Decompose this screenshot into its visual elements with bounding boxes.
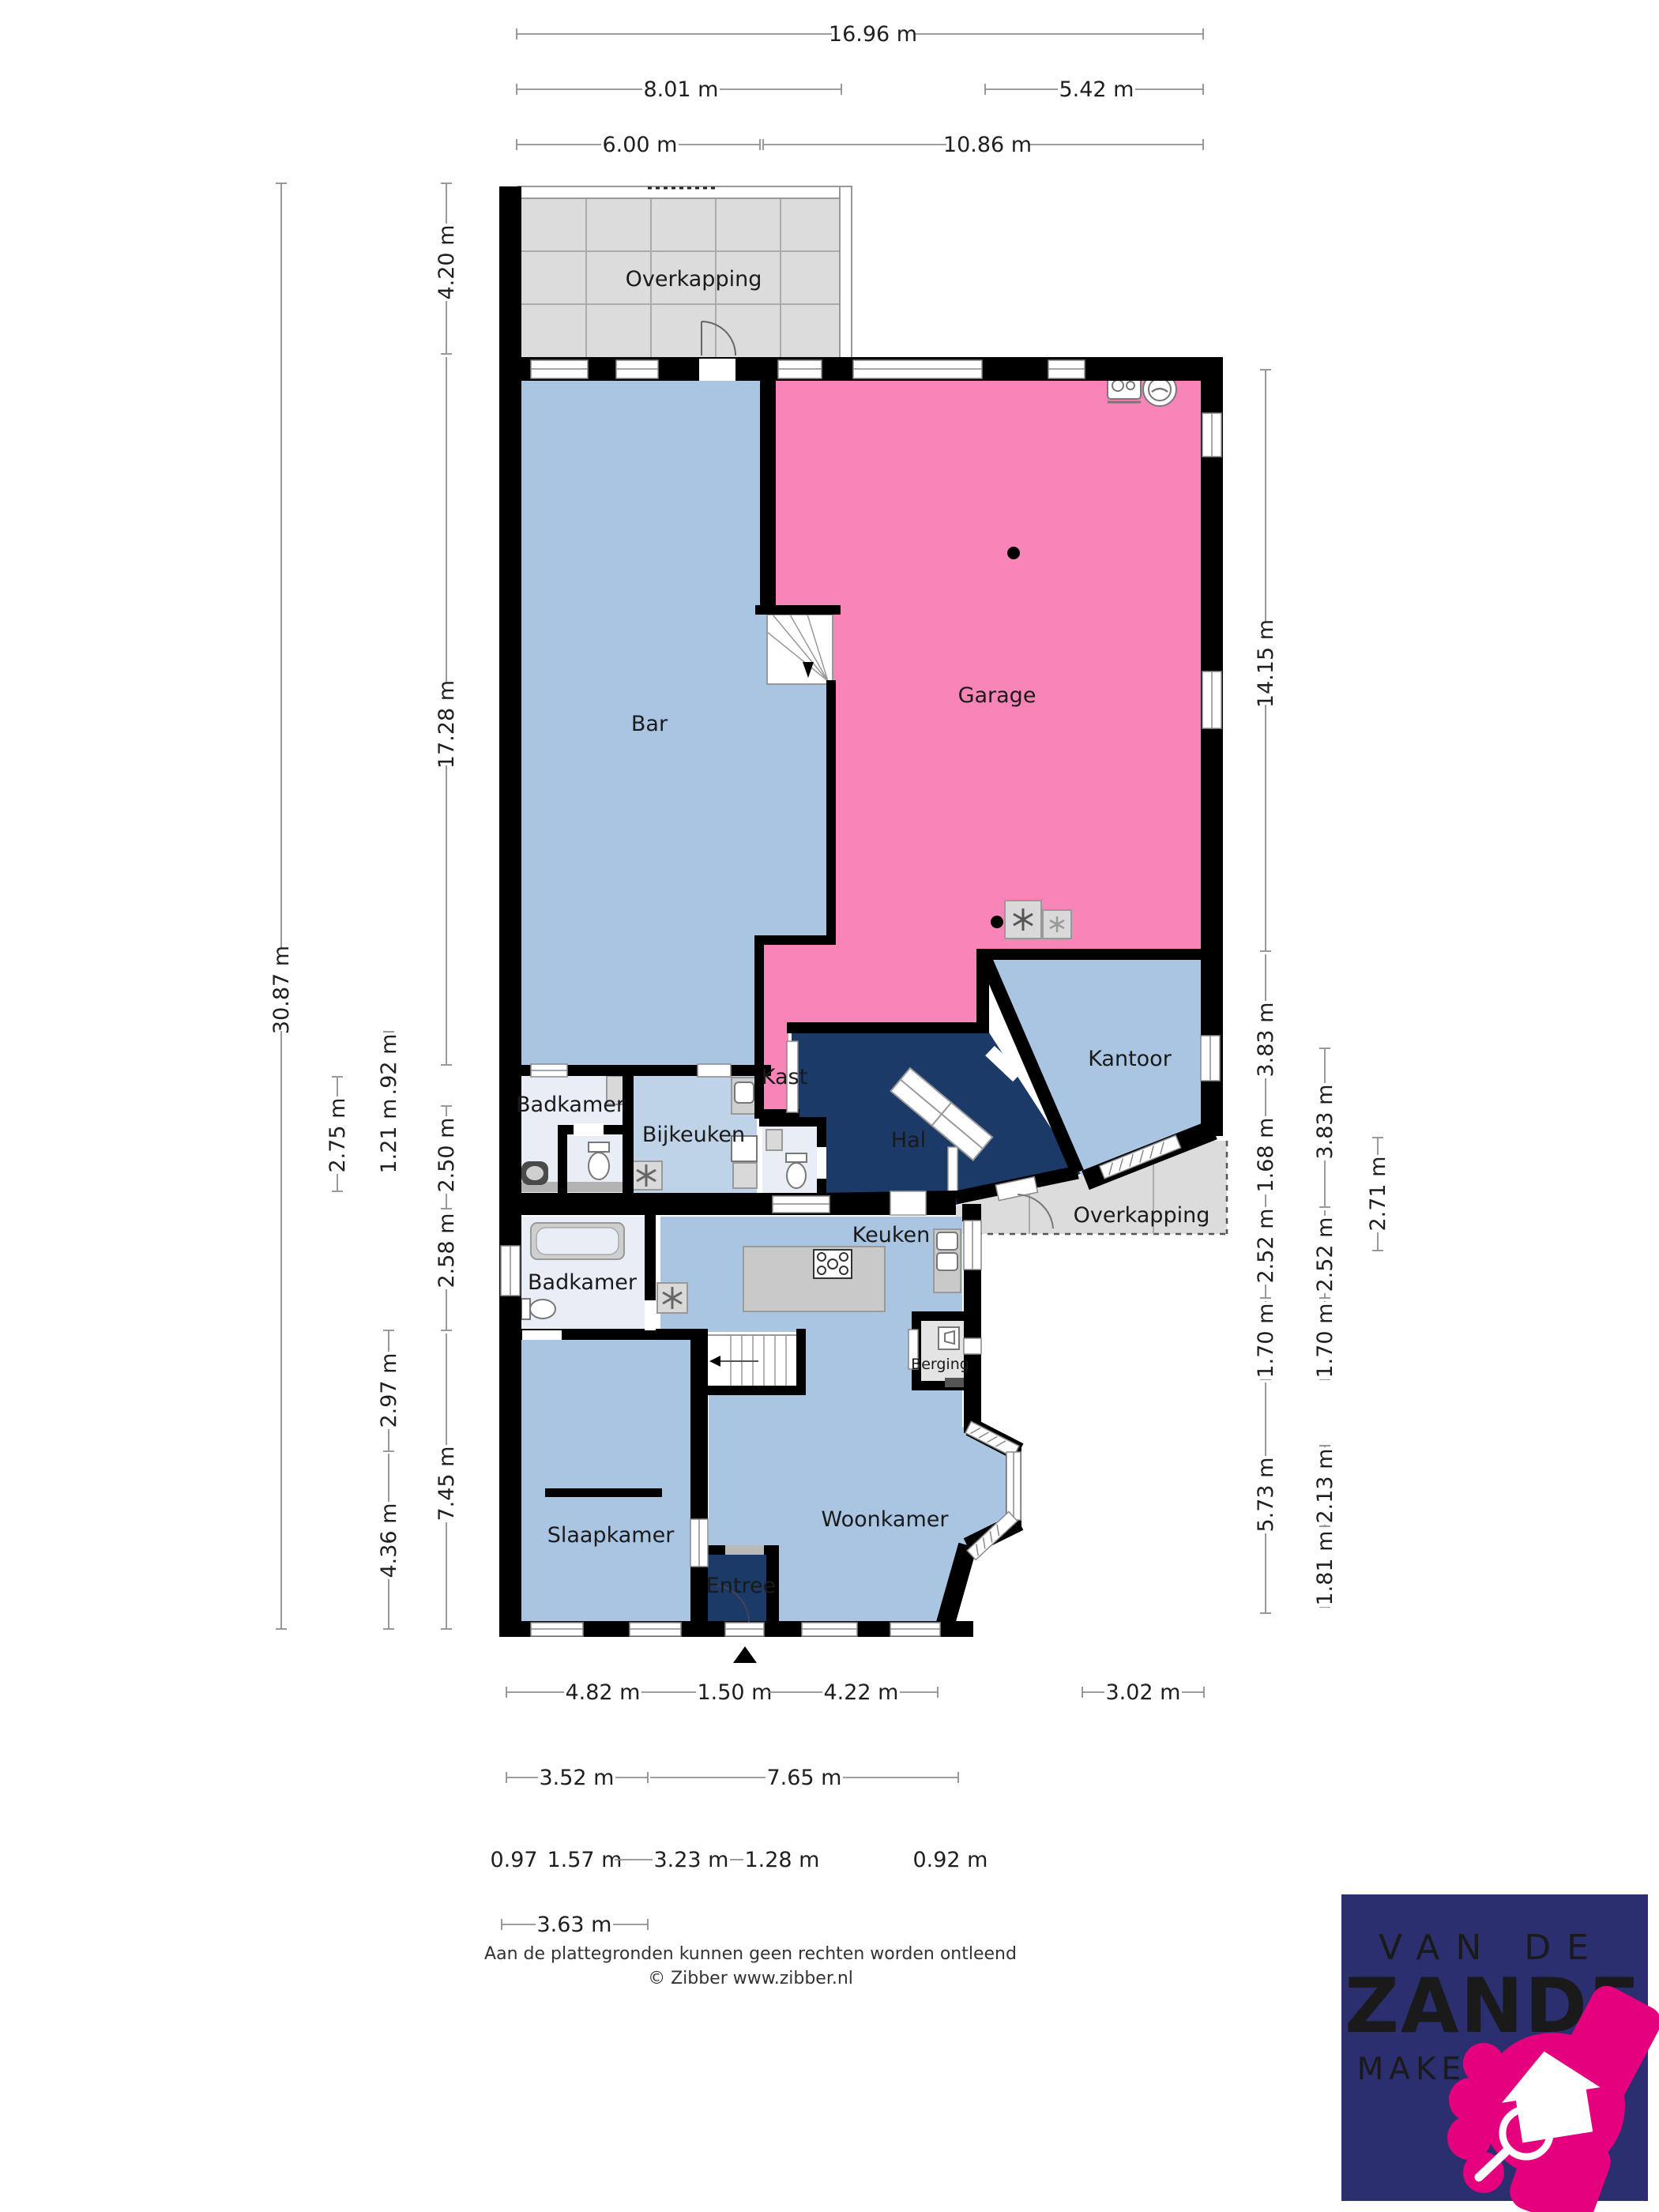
column-dot xyxy=(1007,547,1020,559)
label-garage: Garage xyxy=(958,683,1036,708)
label-keuken: Keuken xyxy=(852,1223,930,1247)
dim-label: 3.23 m xyxy=(653,1848,728,1872)
door-opening xyxy=(773,1196,829,1213)
dim-label: 2.52 m xyxy=(1254,1208,1278,1283)
dim-label: 14.15 m xyxy=(1254,619,1278,708)
stairs-lower xyxy=(707,1335,799,1387)
dim-label: 1.70 m xyxy=(1254,1303,1278,1378)
dim-label: 4.22 m xyxy=(823,1680,898,1705)
dim-label: 1.81 m xyxy=(1313,1530,1337,1605)
dim-label: 4.36 m xyxy=(377,1503,401,1578)
dim-label: 1.70 m xyxy=(1313,1303,1337,1378)
boiler-icon xyxy=(939,1327,959,1349)
dim-label: 4.82 m xyxy=(565,1680,640,1705)
door-opening xyxy=(699,359,735,381)
stove-icon xyxy=(814,1250,852,1278)
dim-label: 3.83 m xyxy=(1313,1084,1337,1159)
window xyxy=(501,1246,520,1296)
dim-label: 3.02 m xyxy=(1105,1680,1180,1705)
dim-label: 1.68 m xyxy=(1254,1117,1278,1192)
label-entree: Entree xyxy=(706,1574,777,1598)
toilet-icon xyxy=(786,1153,807,1188)
label-overkapping-right: Overkapping xyxy=(1074,1203,1210,1228)
slaapkamer-bar xyxy=(545,1488,662,1497)
window xyxy=(853,360,982,378)
berging-threshold xyxy=(945,1378,964,1387)
dim-label: 2.52 m xyxy=(1313,1217,1337,1292)
dim-right: 14.15 m 3.83 m 1.68 m 2.52 m 1.70 m 5.73… xyxy=(1254,370,1390,1613)
dim-label: 2.13 m xyxy=(1313,1448,1337,1523)
dim-label: 2.75 m xyxy=(325,1097,350,1172)
floorplan-drawing: Overkapping Bar Garage Kantoor Badkamer … xyxy=(0,0,1659,2212)
label-berging: Berging xyxy=(911,1356,969,1373)
room-slaapkamer xyxy=(519,1335,693,1623)
label-badkamer-beneden: Badkamer xyxy=(528,1270,638,1295)
dim-label: 1.28 m xyxy=(744,1848,819,1872)
dim-label: 7.65 m xyxy=(766,1766,841,1790)
dim-label: 2.58 m xyxy=(434,1213,459,1288)
window xyxy=(531,1064,567,1077)
window xyxy=(1202,671,1221,728)
dim-label: 1.57 m xyxy=(547,1848,622,1872)
dim-label: 2.71 m xyxy=(1366,1156,1390,1231)
north-arrow xyxy=(733,1646,757,1663)
dim-label: 17.28 m xyxy=(434,680,459,769)
appliance xyxy=(733,1163,757,1188)
bijkeuken-sink xyxy=(732,1078,757,1114)
label-bijkeuken: Bijkeuken xyxy=(642,1123,745,1147)
dim-label: 4.20 m xyxy=(434,224,459,299)
dim-label: 5.73 m xyxy=(1254,1457,1278,1532)
logo: VAN DE ZANDE MAKELAARDIJ xyxy=(1341,1894,1659,2212)
dim-label: 2.97 m xyxy=(377,1352,401,1428)
freezer-icon xyxy=(1005,901,1041,939)
label-kast: Kast xyxy=(762,1065,807,1089)
dim-label: 2.50 m xyxy=(434,1117,459,1192)
dim-bottom: 4.82 m 1.50 m 4.22 m 3.02 m 3.52 m 7.65 … xyxy=(489,1680,1204,1937)
dim-top: 16.96 m 8.01 m 5.42 m 6.00 m 10.86 m xyxy=(517,22,1203,157)
door-opening xyxy=(890,1191,926,1215)
column-dot xyxy=(991,916,1003,928)
door-opening xyxy=(645,1300,656,1330)
logo-line1: VAN DE xyxy=(1379,1928,1604,1968)
label-kantoor: Kantoor xyxy=(1088,1047,1172,1071)
window xyxy=(616,360,658,378)
bathtub-icon xyxy=(531,1223,624,1259)
label-hal: Hal xyxy=(891,1128,926,1153)
label-slaapkamer: Slaapkamer xyxy=(547,1523,675,1548)
dim-label: 3.83 m xyxy=(1254,1002,1278,1077)
window xyxy=(1202,413,1221,457)
dim-label: 16.96 m xyxy=(829,22,917,47)
door-opening xyxy=(690,1519,708,1567)
overkapping-right-edge xyxy=(840,186,852,359)
window xyxy=(802,1623,857,1636)
dim-label: 8.01 m xyxy=(643,77,718,102)
label-badkamer-boven: Badkamer xyxy=(516,1093,626,1117)
window xyxy=(964,1338,981,1354)
vent-icon xyxy=(630,1161,662,1190)
stairs-upper xyxy=(767,615,833,684)
label-woonkamer: Woonkamer xyxy=(822,1507,950,1532)
footer-copyright: © Zibber www.zibber.nl xyxy=(648,1969,853,1988)
floorplan-page: Overkapping Bar Garage Kantoor Badkamer … xyxy=(0,0,1659,2212)
dim-label: 1.50 m xyxy=(697,1680,772,1705)
dim-label: 5.42 m xyxy=(1059,77,1134,102)
label-overkapping-top: Overkapping xyxy=(626,267,762,292)
window xyxy=(964,1221,981,1270)
dim-left: 30.87 m 2.75 m 1.92 m 1.21 m 2.97 m 4.36… xyxy=(269,183,459,1629)
window xyxy=(531,360,588,378)
dim-label: 3.63 m xyxy=(536,1913,611,1937)
dim-label: 6.00 m xyxy=(602,133,677,157)
door-opening xyxy=(817,1147,826,1179)
kitchen-island xyxy=(743,1247,885,1311)
dim-label: 0.92 m xyxy=(912,1848,987,1872)
dim-label: 1.21 m xyxy=(377,1098,401,1173)
footer-disclaimer: Aan de plattegronden kunnen geen rechten… xyxy=(484,1944,1017,1964)
window xyxy=(531,1623,583,1636)
window xyxy=(890,1623,940,1636)
toilet-icon xyxy=(589,1142,609,1179)
front-door xyxy=(725,1623,764,1636)
dim-label: 3.52 m xyxy=(539,1766,614,1790)
dim-label: 7.45 m xyxy=(434,1446,459,1521)
sink-icon xyxy=(521,1161,548,1185)
wc-sink xyxy=(766,1130,782,1150)
door-opening xyxy=(574,1123,604,1136)
door-opening xyxy=(522,1330,562,1340)
toilet-icon xyxy=(521,1299,555,1319)
dim-label: 30.87 m xyxy=(269,946,294,1034)
window xyxy=(778,360,822,378)
label-bar: Bar xyxy=(631,712,668,736)
window xyxy=(1048,360,1085,378)
fridge-icon xyxy=(1043,910,1071,939)
vent-icon xyxy=(657,1283,687,1313)
dim-label: 10.86 m xyxy=(943,133,1032,157)
window xyxy=(1006,1452,1021,1520)
window xyxy=(1201,1036,1220,1081)
window xyxy=(630,1623,681,1636)
kitchen-counter xyxy=(934,1229,961,1292)
door-opening xyxy=(698,1064,731,1077)
opening xyxy=(725,1545,764,1555)
